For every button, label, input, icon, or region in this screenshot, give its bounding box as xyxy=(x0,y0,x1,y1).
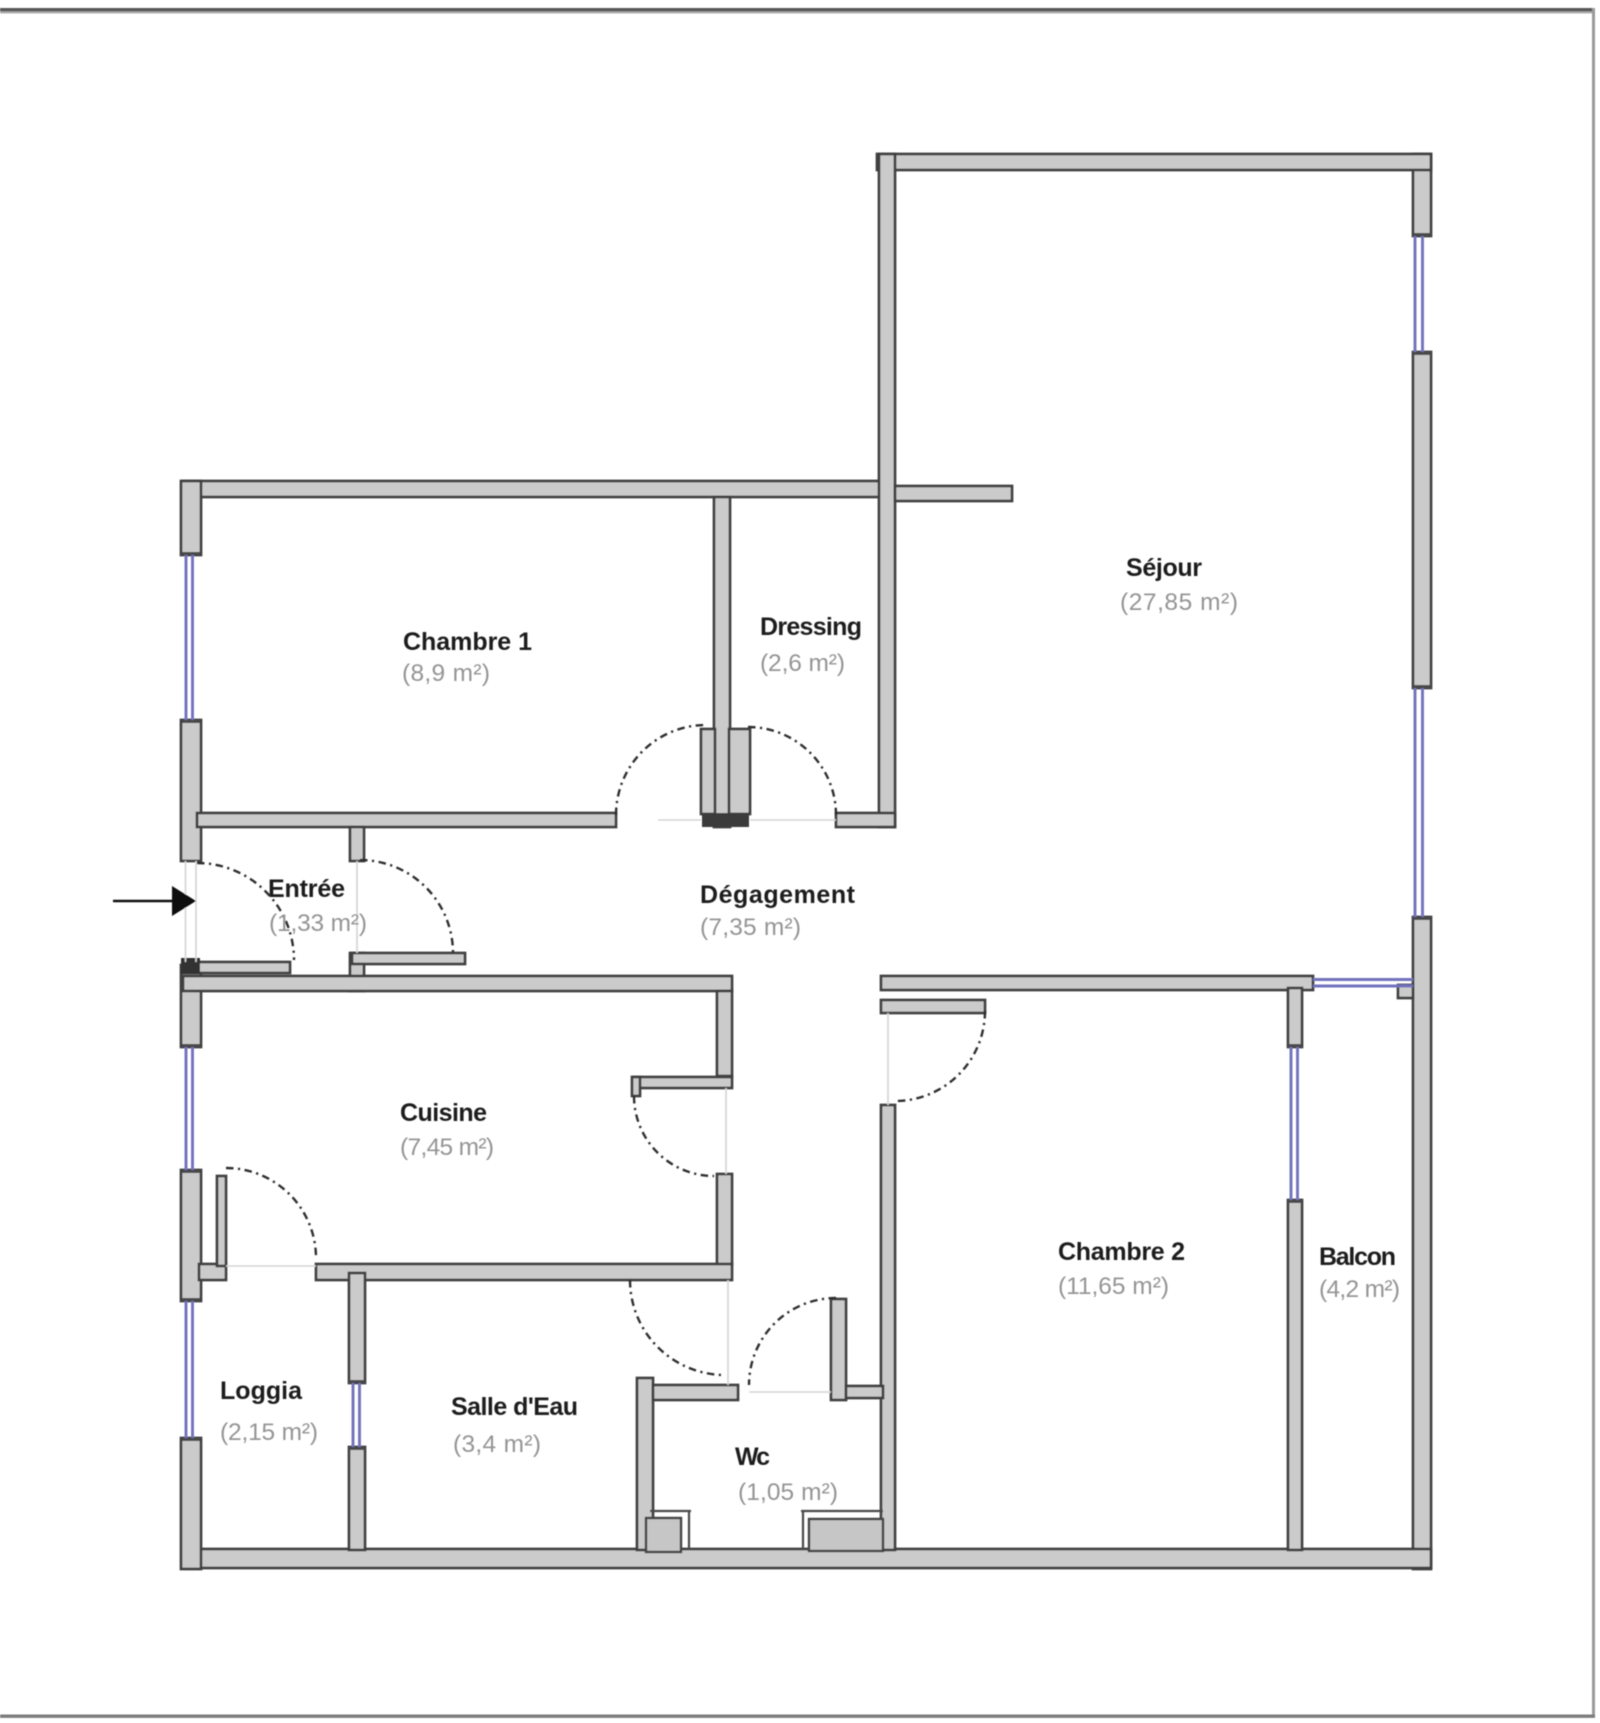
svg-text:(7,35 m²): (7,35 m²) xyxy=(700,914,801,941)
svg-text:(7,45 m²): (7,45 m²) xyxy=(400,1134,494,1161)
svg-text:Salle d'Eau: Salle d'Eau xyxy=(451,1393,578,1421)
svg-text:Dégagement: Dégagement xyxy=(700,881,856,909)
svg-text:Loggia: Loggia xyxy=(220,1377,303,1405)
svg-text:Entrée: Entrée xyxy=(268,875,345,903)
svg-text:(11,65 m²): (11,65 m²) xyxy=(1058,1273,1169,1300)
svg-text:Chambre 1: Chambre 1 xyxy=(403,628,532,656)
svg-text:(8,9 m²): (8,9 m²) xyxy=(402,660,490,687)
svg-text:Balcon: Balcon xyxy=(1319,1243,1396,1271)
svg-text:(27,85 m²): (27,85 m²) xyxy=(1120,589,1238,616)
svg-text:Wc: Wc xyxy=(735,1443,770,1471)
svg-text:Cuisine: Cuisine xyxy=(400,1099,487,1127)
svg-text:(1,05 m²): (1,05 m²) xyxy=(738,1479,838,1506)
svg-text:(4,2 m²): (4,2 m²) xyxy=(1319,1276,1400,1303)
svg-text:Chambre 2: Chambre 2 xyxy=(1058,1238,1185,1266)
svg-text:Dressing: Dressing xyxy=(760,613,862,641)
svg-text:(2,15 m²): (2,15 m²) xyxy=(220,1419,318,1446)
svg-text:Séjour: Séjour xyxy=(1126,554,1202,582)
svg-text:(1,33 m²): (1,33 m²) xyxy=(269,910,367,937)
svg-text:(2,6 m²): (2,6 m²) xyxy=(760,650,845,677)
svg-text:(3,4 m²): (3,4 m²) xyxy=(453,1431,541,1458)
